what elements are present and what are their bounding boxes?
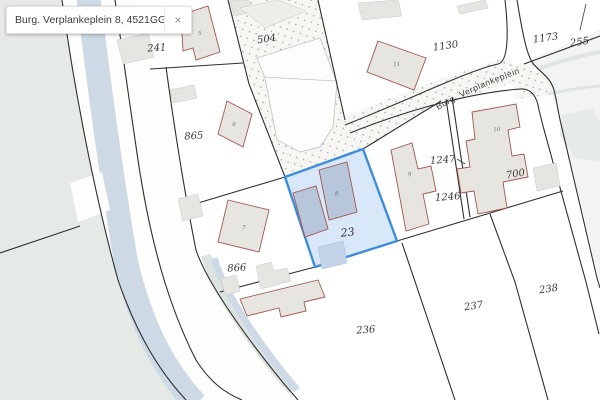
parcel-label-23: 23 [339, 225, 355, 239]
search-box[interactable]: Burg. Verplankeplein 8, 4521GG Bier × [6, 6, 192, 34]
building-label-10: 10 [493, 126, 501, 133]
shed [533, 163, 560, 191]
search-input[interactable]: Burg. Verplankeplein 8, 4521GG Bier [7, 14, 164, 26]
building-label-6: 6 [232, 122, 236, 128]
close-icon[interactable]: × [164, 7, 191, 33]
parcel-label-241: 241 [146, 42, 167, 54]
parcel-label-236: 236 [355, 324, 376, 336]
building-label-7: 7 [242, 225, 246, 231]
parcel-label-866: 866 [227, 262, 247, 274]
map-canvas[interactable]: 241 504 1130 1173 255 865 866 236 237 23… [0, 0, 600, 400]
parcel-label-1247: 1247 [430, 154, 457, 167]
map-viewport: 241 504 1130 1173 255 865 866 236 237 23… [0, 0, 600, 400]
parcel-label-1246: 1246 [435, 191, 462, 204]
building-label-11: 11 [393, 62, 401, 69]
parcel-label-865: 865 [184, 130, 204, 142]
